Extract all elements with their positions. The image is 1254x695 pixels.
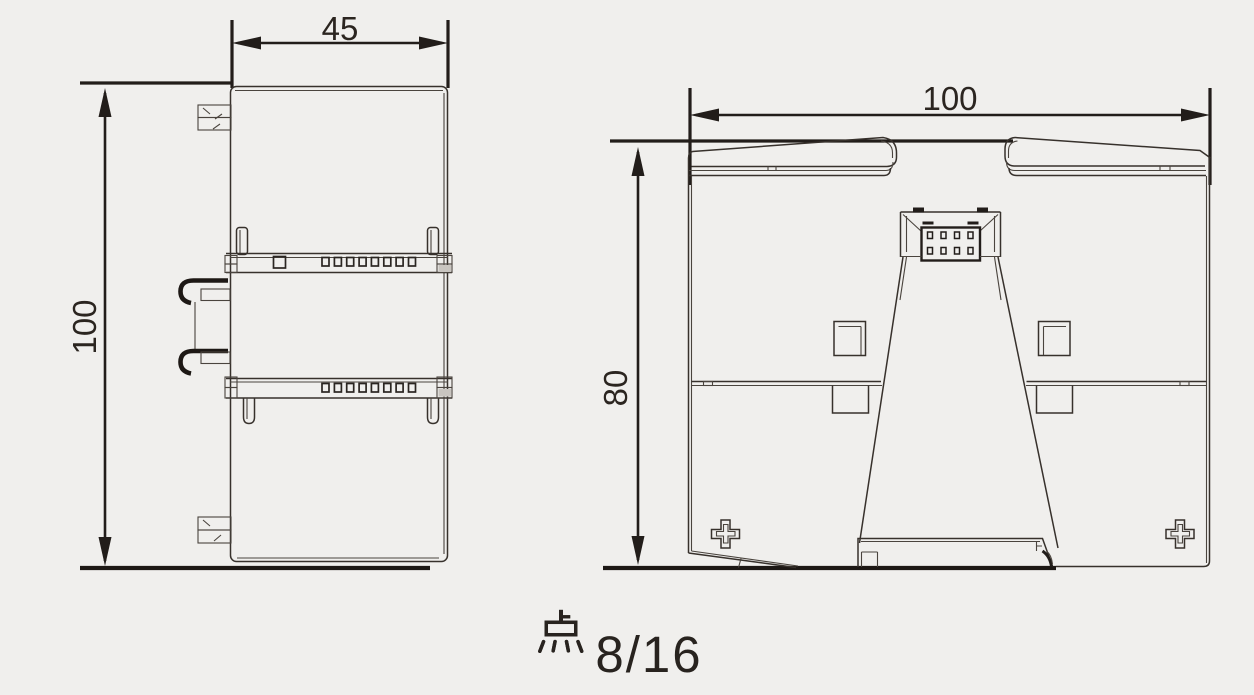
socket-pin [968, 232, 973, 239]
dim-80: 80 [597, 141, 1056, 568]
tab-slot-right [1037, 386, 1073, 414]
arrowhead-right [419, 37, 448, 50]
clip-hook-lower [181, 351, 229, 374]
side-module-body [231, 87, 448, 562]
arrowhead-left [690, 109, 719, 122]
caption-char: / [626, 629, 640, 680]
socket-pin [941, 232, 946, 239]
caption-char: 8 [595, 629, 623, 680]
din-rail-clips [181, 281, 231, 374]
arrowhead-right [1181, 109, 1210, 122]
clip-hook-upper [181, 281, 229, 304]
arrowhead-up [99, 88, 112, 117]
rear-openings [833, 322, 1073, 414]
module-outline [231, 87, 448, 562]
tab-upper [198, 105, 231, 118]
dim-45: 45 [232, 10, 448, 88]
terminal-window [384, 384, 391, 393]
socket-pin [941, 248, 946, 255]
guide-channel [860, 257, 1059, 548]
caption-char: 6 [672, 629, 700, 680]
socket-pin [928, 248, 933, 255]
socket-pin [928, 232, 933, 239]
terminal-window [384, 258, 391, 267]
hanging-post [244, 398, 255, 424]
terminal-cover-left [689, 138, 897, 176]
hanging-post [428, 398, 439, 424]
terminal-window [347, 258, 354, 267]
caption: 8/16 [538, 608, 758, 680]
latch-hook [1043, 551, 1052, 567]
tab-upper [198, 517, 231, 530]
terminal-window [359, 384, 366, 393]
terminal-window [409, 258, 416, 267]
flap-inner-arc [881, 141, 893, 158]
bottom-chamfer [689, 553, 797, 568]
dimension-drawing-canvas: 45 100 [0, 0, 1254, 695]
dian-glyph [538, 608, 584, 655]
technical-drawing-page: 45 100 [0, 0, 1254, 695]
caption-char: 1 [642, 629, 670, 680]
arrowhead-up [632, 147, 645, 176]
din-latch [858, 539, 1053, 568]
recess-slant-right [980, 215, 998, 232]
latch-notch [1037, 542, 1043, 552]
side-view-group: 45 100 [66, 10, 452, 568]
clip-slot [201, 289, 230, 301]
terminal-window [359, 258, 366, 267]
socket-pin [955, 248, 960, 255]
flap-top-edge [1015, 138, 1211, 159]
end-post [237, 228, 248, 255]
terminal-window [371, 384, 378, 393]
end-post [428, 228, 439, 255]
arrowhead-left [232, 37, 261, 50]
terminal-strip-upper [225, 228, 452, 273]
connector-mark [923, 222, 934, 225]
dim-100-label: 100 [66, 299, 103, 354]
terminal-window [409, 384, 416, 393]
tab-slot-left [833, 386, 869, 414]
terminal-window [334, 258, 341, 267]
terminal-cover-right [1005, 138, 1211, 176]
recess-slant-left [903, 215, 921, 232]
rear-module-body [689, 158, 1210, 568]
socket-pin [968, 248, 973, 255]
terminal-window [396, 258, 403, 267]
end-fitting-fill [439, 265, 452, 272]
bottom-chamfer-inner [692, 551, 799, 566]
dim-100-rear-label: 100 [922, 80, 977, 117]
terminal-window [334, 384, 341, 393]
arrowhead-down [99, 537, 112, 566]
parting-line [692, 382, 1207, 386]
terminal-strip-lower [225, 377, 452, 424]
terminal-window [322, 258, 329, 267]
opening-right-inner [1044, 327, 1067, 356]
end-fitting-fill [439, 389, 452, 397]
top-mounting-tab [198, 105, 231, 130]
cross-mark-left-inner [717, 525, 736, 544]
socket-pin [955, 232, 960, 239]
dim-100-side: 100 [66, 83, 430, 568]
cross-marks [712, 520, 1195, 548]
terminal-window [274, 257, 286, 269]
bottom-mounting-tab [198, 517, 231, 543]
opening-left-inner [839, 327, 862, 356]
clip-slot [201, 352, 230, 364]
connector-tab [913, 208, 924, 213]
flap-outline [1005, 138, 1205, 167]
tab-nicks [203, 108, 222, 129]
connector-mark [968, 222, 979, 225]
cross-mark-right-inner [1171, 525, 1190, 544]
dim-45-label: 45 [322, 10, 359, 47]
dim-80-label: 80 [597, 370, 634, 407]
terminal-window [396, 384, 403, 393]
terminal-window [347, 384, 354, 393]
connector-tab [977, 208, 988, 213]
guide-line-left-inner [900, 257, 907, 300]
bus-connector [901, 208, 1001, 261]
flap-bottom-line2 [689, 168, 891, 176]
flap-inner-arc [1009, 141, 1018, 158]
guide-line-right [998, 257, 1058, 548]
terminal-window [322, 384, 329, 393]
latch-grip [862, 552, 878, 567]
latch-outline [858, 539, 1053, 568]
arrowhead-down [632, 536, 645, 565]
terminal-window [371, 258, 378, 267]
guide-line-left [860, 257, 904, 543]
rear-view-group: 100 80 [597, 80, 1211, 568]
flap-bottom-line2 [1009, 168, 1206, 176]
